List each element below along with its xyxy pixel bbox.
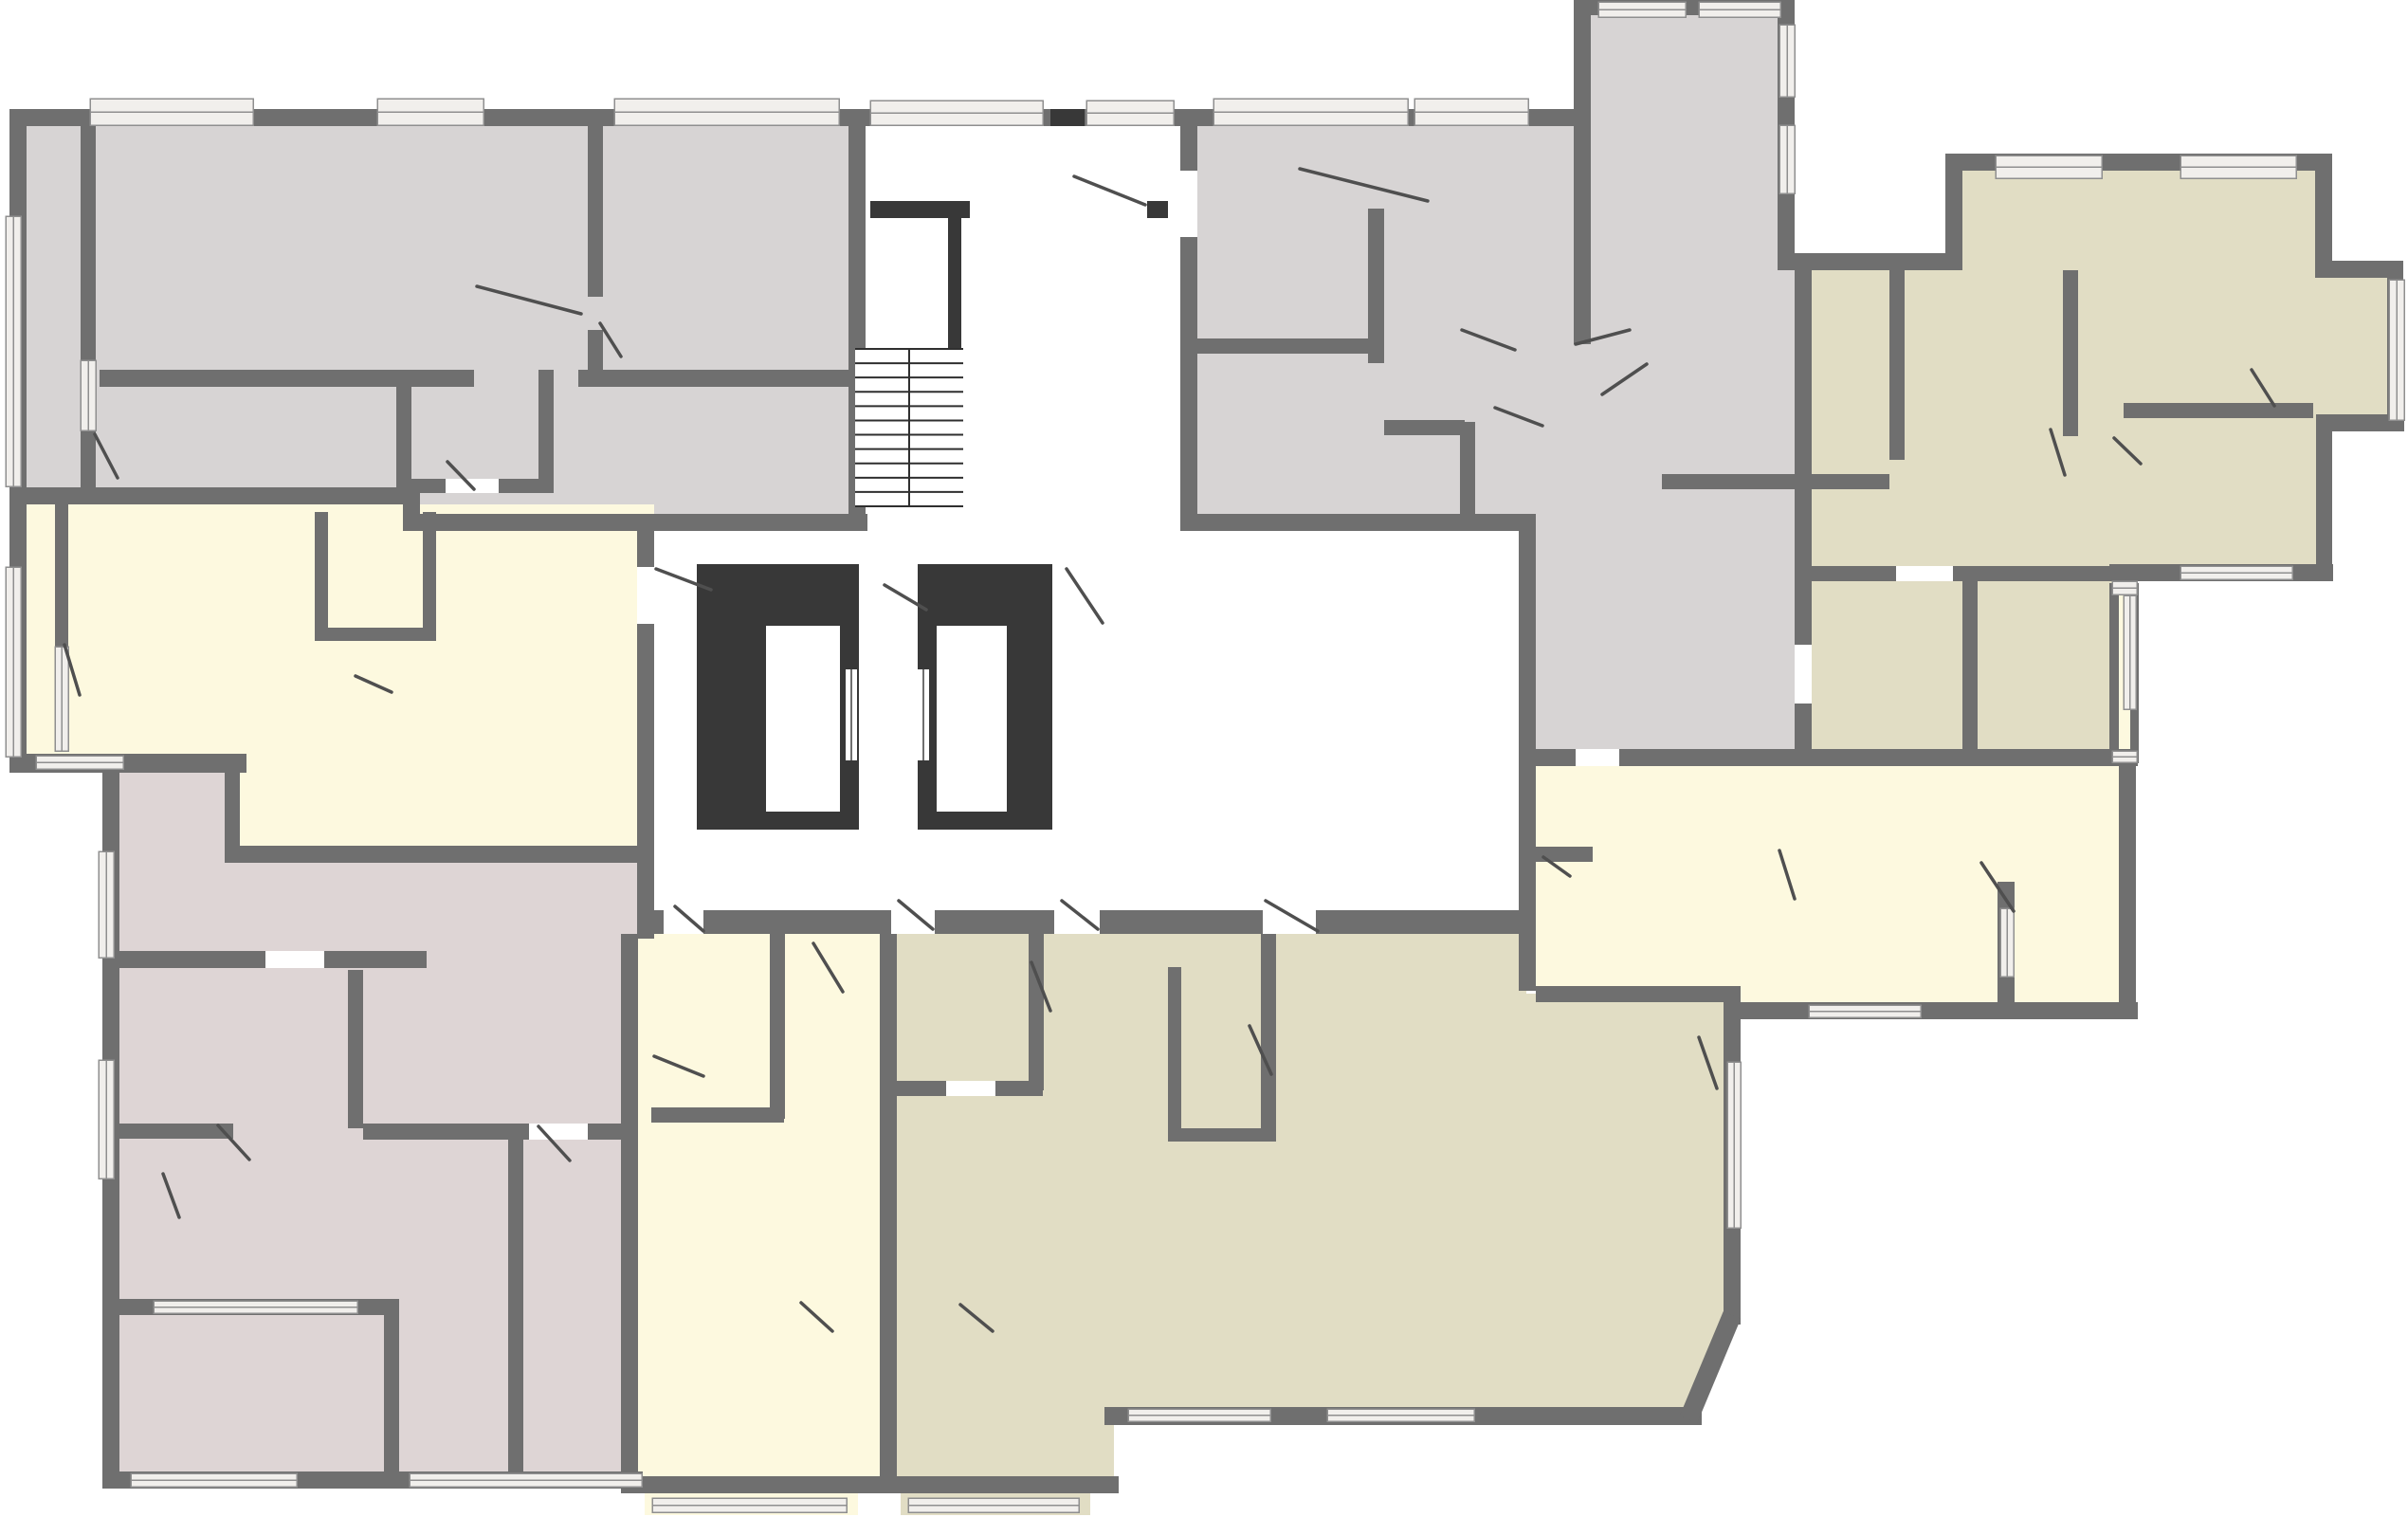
wall-segment-81	[315, 512, 328, 635]
door-opening-6	[1896, 566, 1953, 581]
wall-segment-9	[2315, 154, 2332, 278]
apartment-bottom-middle-cream	[626, 934, 894, 1493]
wall-segment-13	[2316, 414, 2332, 581]
wall-segment-6	[1795, 253, 1962, 270]
core-wall-3	[1050, 109, 1085, 126]
apartment-top-left-gray	[9, 109, 867, 531]
wall-segment-55	[1384, 420, 1465, 435]
wall-segment-35	[621, 1476, 896, 1493]
door-opening-4	[1576, 749, 1619, 766]
elevator-shaft-1	[937, 626, 1007, 812]
wall-segment-66	[651, 1107, 784, 1123]
wall-segment-41	[1735, 1002, 2138, 1019]
wall-segment-45	[100, 370, 474, 387]
wall-segment-24	[9, 487, 417, 504]
wall-segment-59	[2063, 270, 2078, 436]
wall-segment-71	[1168, 1128, 1276, 1142]
wall-segment-79	[2109, 583, 2119, 763]
door-opening-12	[637, 567, 654, 624]
wall-segment-62	[1812, 566, 2138, 581]
wall-segment-51	[538, 370, 554, 493]
wall-segment-43	[81, 126, 96, 363]
wall-segment-57	[1662, 474, 1889, 489]
wall-segment-44	[81, 429, 96, 504]
wall-segment-70	[1261, 934, 1276, 1138]
wall-segment-37	[891, 1476, 1119, 1493]
elevator-shaft-0	[766, 626, 840, 812]
wall-segment-53	[1574, 126, 1591, 344]
wall-segment-10	[2332, 261, 2403, 278]
wall-segment-69	[1168, 967, 1181, 1138]
core-wall-1	[926, 201, 970, 218]
wall-segment-73	[348, 970, 363, 1128]
door-opening-5	[1795, 645, 1812, 704]
door-opening-9	[946, 1081, 995, 1096]
apartment-mid-right-cream	[1536, 763, 2136, 1019]
wall-segment-56	[1460, 422, 1475, 531]
core-wall-4	[1147, 201, 1168, 218]
wall-segment-18	[1536, 749, 2138, 766]
wall-segment-40	[1536, 986, 1741, 1002]
wall-segment-48	[588, 330, 603, 387]
wall-segment-3	[1574, 0, 1591, 126]
floor-plan-page	[0, 0, 2408, 1517]
wall-segment-78	[384, 1299, 399, 1479]
wall-segment-36	[880, 934, 897, 1493]
wall-segment-47	[588, 126, 603, 297]
wall-segment-65	[770, 934, 785, 1119]
wall-segment-30	[225, 846, 654, 863]
wall-segment-61	[1962, 581, 1978, 752]
wall-segment-58	[1889, 270, 1905, 460]
wall-segment-54	[1197, 338, 1370, 354]
wall-segment-49	[396, 387, 411, 493]
wall-segment-34	[621, 934, 638, 1489]
wall-segment-74	[119, 1124, 233, 1139]
door-opening-11	[1180, 171, 1197, 237]
wall-segment-60	[2124, 403, 2313, 418]
wall-segment-76	[508, 1140, 523, 1481]
elevator-shaft-2	[859, 564, 918, 830]
core-wall-0	[870, 201, 929, 218]
wall-segment-16	[2119, 758, 2136, 1019]
wall-segment-52	[1368, 209, 1384, 363]
wall-segment-67	[1029, 934, 1044, 1090]
wall-segment-20	[1180, 514, 1536, 531]
core-wall-2	[948, 218, 961, 351]
wall-segment-84	[55, 504, 68, 647]
wall-segment-46	[578, 370, 853, 387]
wall-segment-7	[1945, 154, 1962, 270]
wall-segment-25	[403, 514, 867, 531]
wall-segment-82	[423, 512, 436, 635]
floor-plan-svg	[0, 0, 2408, 1517]
wall-segment-26	[403, 487, 420, 531]
wall-segment-75	[363, 1124, 638, 1140]
door-opening-7	[265, 951, 324, 968]
wall-segment-83	[315, 628, 436, 641]
